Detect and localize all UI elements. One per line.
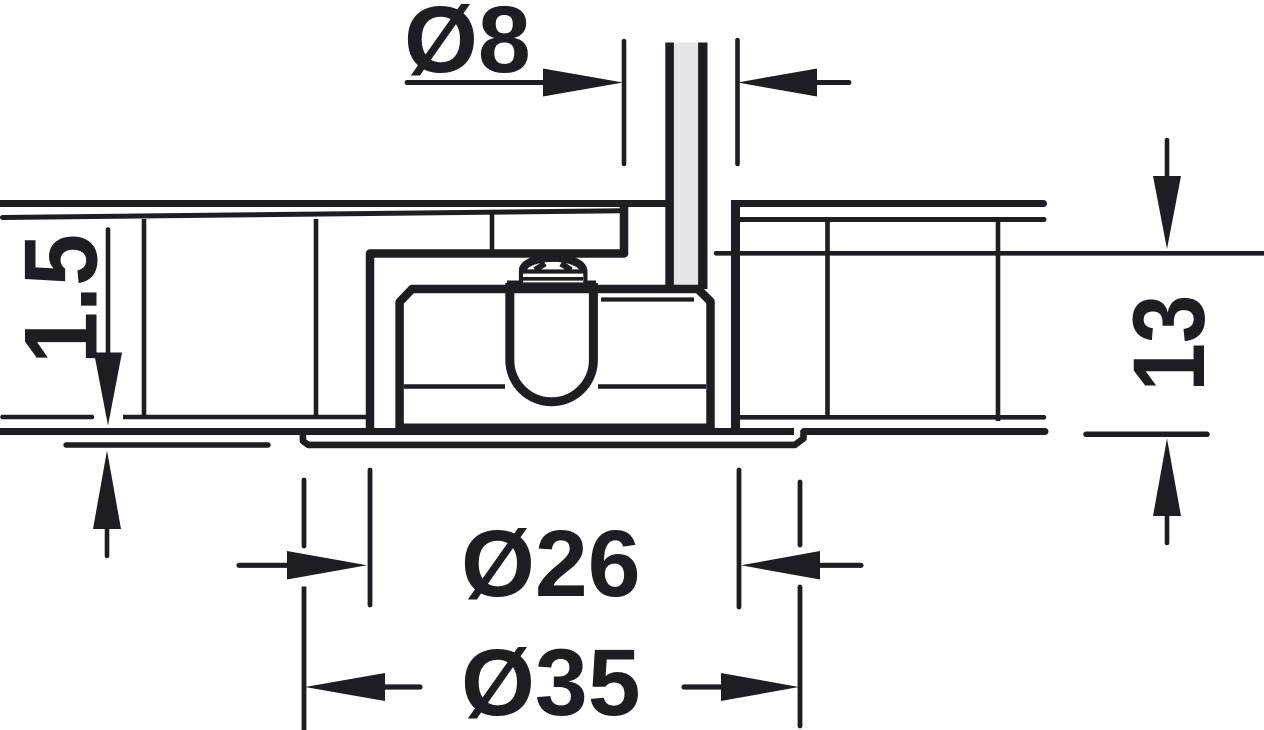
svg-text:1.5: 1.5 [2, 234, 119, 364]
svg-text:Ø8: Ø8 [404, 0, 531, 93]
svg-text:Ø35: Ø35 [461, 630, 641, 730]
svg-text:13: 13 [1113, 295, 1227, 392]
svg-text:Ø26: Ø26 [461, 511, 641, 617]
